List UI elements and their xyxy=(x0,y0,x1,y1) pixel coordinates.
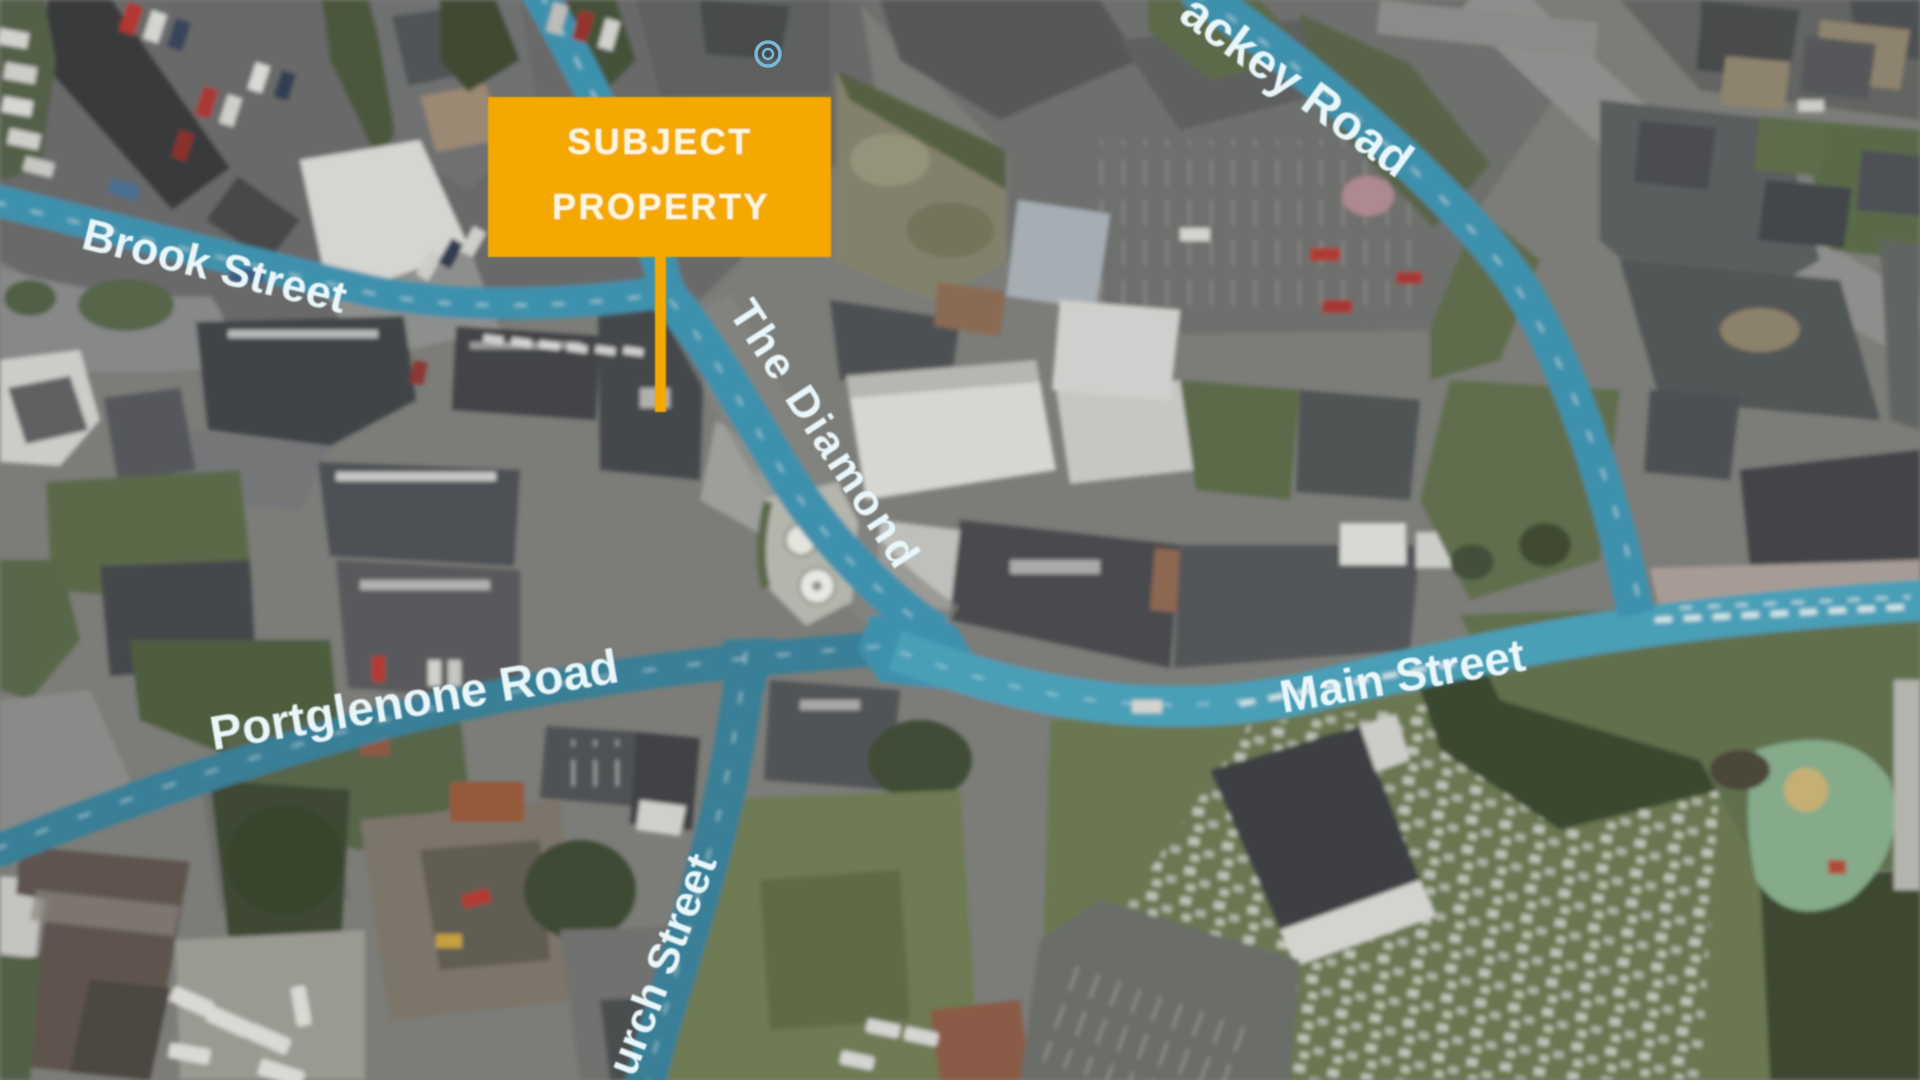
svg-text:PROPERTY: PROPERTY xyxy=(552,186,770,227)
svg-text:SUBJECT: SUBJECT xyxy=(567,121,753,162)
